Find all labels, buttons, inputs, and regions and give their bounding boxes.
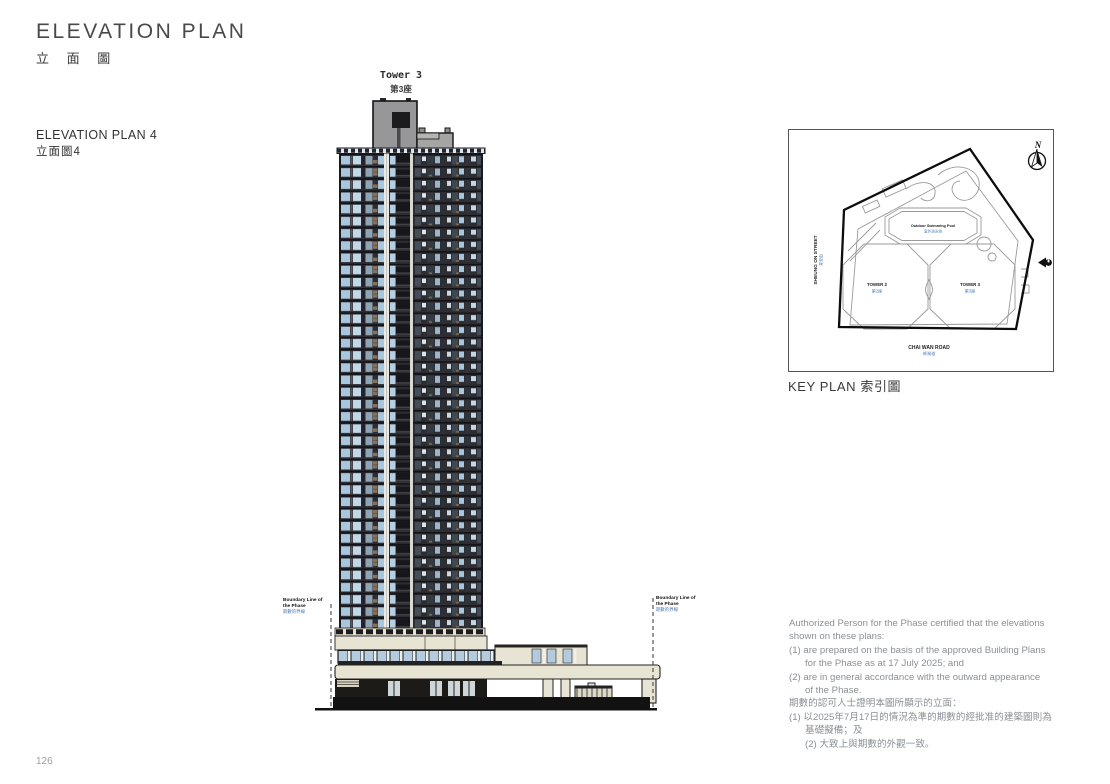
tower-elevation-drawing [280,68,720,718]
certification-line: for the Phase as at 17 July 2025; and [789,657,1067,670]
tower3-label-zh: 第3座 [965,288,976,295]
north-letter: N [1034,140,1042,150]
certification-line: (1) 以2025年7月17日的情況為準的期數的經批准的建築圖則為 [789,711,1067,724]
tower2-label-zh: 第2座 [872,288,883,295]
podium [315,628,660,711]
certification-line: Authorized Person for the Phase certifie… [789,617,1067,630]
podium-canopy [335,665,660,679]
tower-facade [337,148,485,628]
certification-line: (2) 大致上與期數的外觀一致。 [789,738,1067,751]
elevation-plan-number-label-zh: 立面圖4 [36,143,81,159]
key-plan-caption: KEY PLAN 索引圖 [788,376,901,395]
certification-line: 基礎擬備；及 [789,724,1067,737]
page-title-zh: 立 面 圖 [36,48,117,67]
certification-line: shown on these plans: [789,630,1067,643]
tower2-label-en: TOWER 2 [867,282,887,287]
certification-line: (1) are prepared on the basis of the app… [789,644,1067,657]
roof-structure [373,98,453,153]
key-plan-border [789,130,1054,372]
elevation-plan-number-label: ELEVATION PLAN 4 [36,128,157,142]
key-plan: Outdoor Swimming Pool 室外游泳池 TOWER 2 第2座 … [788,129,1054,372]
tower3-label-en: TOWER 3 [960,282,980,287]
road-label-zh: 柴灣道 [923,350,936,357]
ground-strip [333,697,650,708]
certification-line: 期數的認可人士證明本圖所顯示的立面： [789,697,1067,710]
certification-line: of the Phase. [789,684,1067,697]
page-title: ELEVATION PLAN [36,20,246,44]
certification-line: (2) are in general accordance with the o… [789,671,1067,684]
page-number: 126 [36,756,53,767]
pool-label-en: Outdoor Swimming Pool [911,224,955,228]
certification-note: Authorized Person for the Phase certifie… [789,617,1067,751]
pool-label-zh: 室外游泳池 [924,229,942,234]
ground-line [315,708,657,711]
street-label-zh: 常安街 [818,254,824,266]
